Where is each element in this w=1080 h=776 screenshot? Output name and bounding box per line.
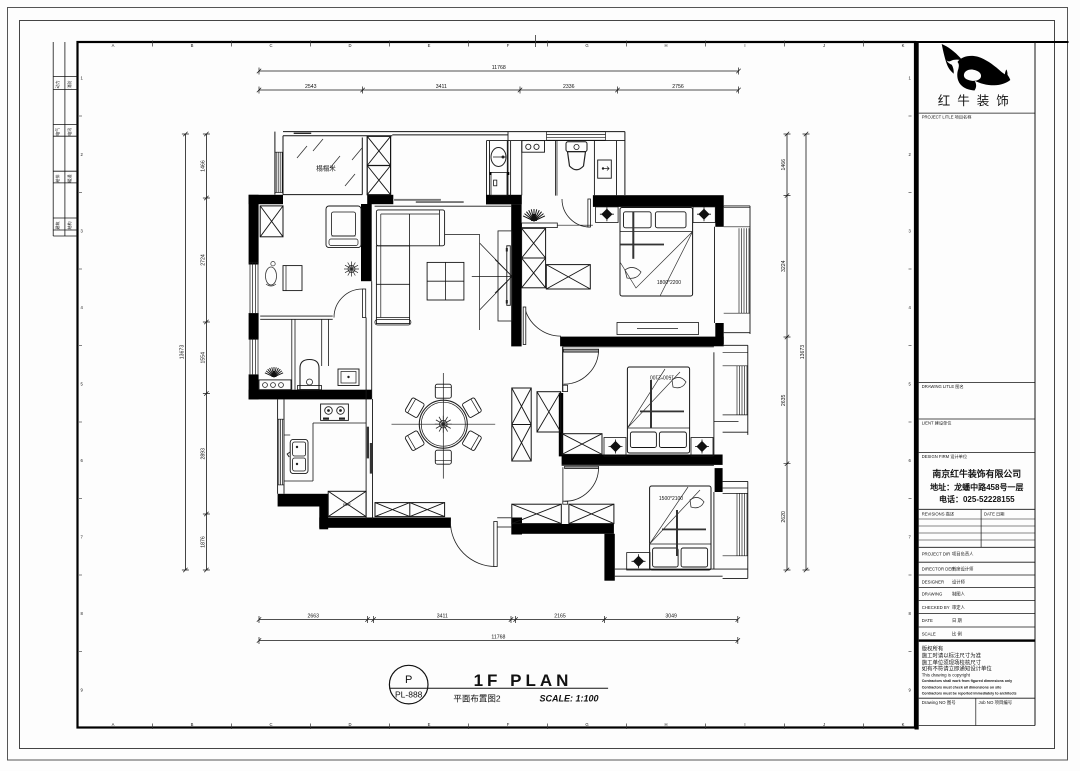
svg-text:DATE: DATE [922,618,933,623]
svg-text:A: A [112,722,115,727]
svg-text:1466: 1466 [201,160,207,172]
svg-text:平面布置图2: 平面布置图2 [453,694,501,704]
svg-text:F: F [507,43,510,48]
svg-text:建筑: 建筑 [54,222,60,230]
svg-text:2165: 2165 [554,614,566,620]
svg-text:2543: 2543 [305,84,317,90]
svg-text:Contractors must check all dim: Contractors must check all dimensions on… [922,685,1002,689]
svg-text:电气: 电气 [54,128,60,136]
svg-text:3049: 3049 [665,614,677,620]
svg-text:榻榻米: 榻榻米 [316,164,336,173]
svg-text:This drawing is copyright: This drawing is copyright [922,672,971,677]
svg-text:Contractors must be reported i: Contractors must be reported immediately… [922,692,1017,696]
svg-text:结构: 结构 [66,222,72,230]
svg-text:2756: 2756 [672,84,684,90]
svg-text:C: C [269,43,272,48]
svg-text:E: E [428,43,431,48]
svg-text:1800*2200: 1800*2200 [657,280,681,286]
svg-text:I: I [744,722,745,727]
svg-text:REVISIONS 描述: REVISIONS 描述 [922,511,955,518]
svg-text:施工单位须现场校核尺寸: 施工单位须现场校核尺寸 [922,658,982,666]
svg-text:11768: 11768 [491,635,505,641]
svg-text:1500*2100: 1500*2100 [650,374,674,380]
svg-text:2663: 2663 [307,614,319,620]
svg-text:1466: 1466 [781,159,787,171]
svg-text:3411: 3411 [437,614,448,620]
svg-text:1500*2100: 1500*2100 [659,496,683,502]
svg-text:消防: 消防 [66,81,72,89]
svg-text:G: G [585,43,588,48]
svg-text:A: A [112,43,115,48]
svg-text:J: J [823,43,825,48]
svg-text:DRAWING: DRAWING [922,592,943,597]
svg-text:DRAWING LITLE 图名: DRAWING LITLE 图名 [922,383,964,390]
svg-text:首席设计师: 首席设计师 [952,566,974,573]
svg-text:H: H [664,722,667,727]
svg-text:K: K [902,722,905,727]
svg-text:LIENT 建设单位: LIENT 建设单位 [922,419,952,426]
svg-text:1F PLAN: 1F PLAN [474,671,573,690]
svg-text:给排: 给排 [54,175,60,183]
svg-text:1554: 1554 [201,352,207,364]
svg-text:Job NO 项目编号: Job NO 项目编号 [979,699,1013,706]
svg-text:C: C [269,722,272,727]
svg-text:版权所有: 版权所有 [922,644,944,652]
svg-text:2336: 2336 [563,84,575,90]
svg-text:2893: 2893 [201,448,207,460]
svg-text:13673: 13673 [180,345,186,360]
svg-text:1876: 1876 [201,536,207,548]
svg-text:D: D [348,43,351,48]
svg-text:施工时请以标注尺寸为准: 施工时请以标注尺寸为准 [922,651,982,659]
svg-text:地址：龙蟠中路458号一层: 地址：龙蟠中路458号一层 [930,482,1023,492]
svg-text:P: P [405,674,412,686]
svg-text:REF: REF [343,502,352,507]
svg-text:K: K [902,43,905,48]
svg-text:2724: 2724 [201,254,207,266]
svg-text:2635: 2635 [781,394,787,406]
svg-text:南京红牛装饰有限公司: 南京红牛装饰有限公司 [932,468,1021,479]
svg-text:I: I [744,43,745,48]
svg-text:制图人: 制图人 [952,591,966,598]
svg-text:红牛装饰: 红牛装饰 [938,93,1016,108]
svg-text:B: B [191,43,194,48]
svg-text:动力: 动力 [54,81,60,89]
svg-text:H: H [664,43,667,48]
svg-text:DIRECTOR DER: DIRECTOR DER [922,567,955,572]
svg-text:PROJECT LITLE 项目名称: PROJECT LITLE 项目名称 [922,113,972,120]
svg-text:Contractors shall work from fi: Contractors shall work from figured dime… [922,679,1012,683]
svg-text:CHECKED BY: CHECKED BY [922,605,950,610]
svg-text:SCALE: 1:100: SCALE: 1:100 [539,694,598,704]
svg-text:B: B [191,722,194,727]
svg-text:电讯: 电讯 [66,128,72,136]
svg-text:设计师: 设计师 [952,578,966,585]
svg-text:PROJECT DIR: PROJECT DIR [922,552,951,557]
svg-text:审定人: 审定人 [952,604,966,611]
svg-text:如有不符请立即通知设计单位: 如有不符请立即通知设计单位 [922,665,993,673]
svg-text:比 例: 比 例 [952,630,962,637]
svg-text:13673: 13673 [800,345,806,360]
svg-text:D: D [348,722,351,727]
svg-text:SCALE: SCALE [922,631,936,636]
svg-text:电话：025-52228155: 电话：025-52228155 [939,494,1015,504]
svg-text:J: J [823,722,825,727]
svg-text:PL-888: PL-888 [395,690,423,700]
svg-text:G: G [585,722,588,727]
svg-text:3411: 3411 [436,84,447,90]
svg-text:DESIGNER: DESIGNER [922,579,944,584]
svg-text:F: F [507,722,510,727]
svg-text:3224: 3224 [781,260,787,272]
svg-text:2620: 2620 [781,511,787,523]
svg-text:E: E [428,722,431,727]
svg-text:11768: 11768 [492,65,506,71]
svg-text:项目负责人: 项目负责人 [952,551,974,558]
svg-text:暖通: 暖通 [66,175,72,183]
svg-text:DESIGN FIRM 设计单位: DESIGN FIRM 设计单位 [922,453,967,460]
